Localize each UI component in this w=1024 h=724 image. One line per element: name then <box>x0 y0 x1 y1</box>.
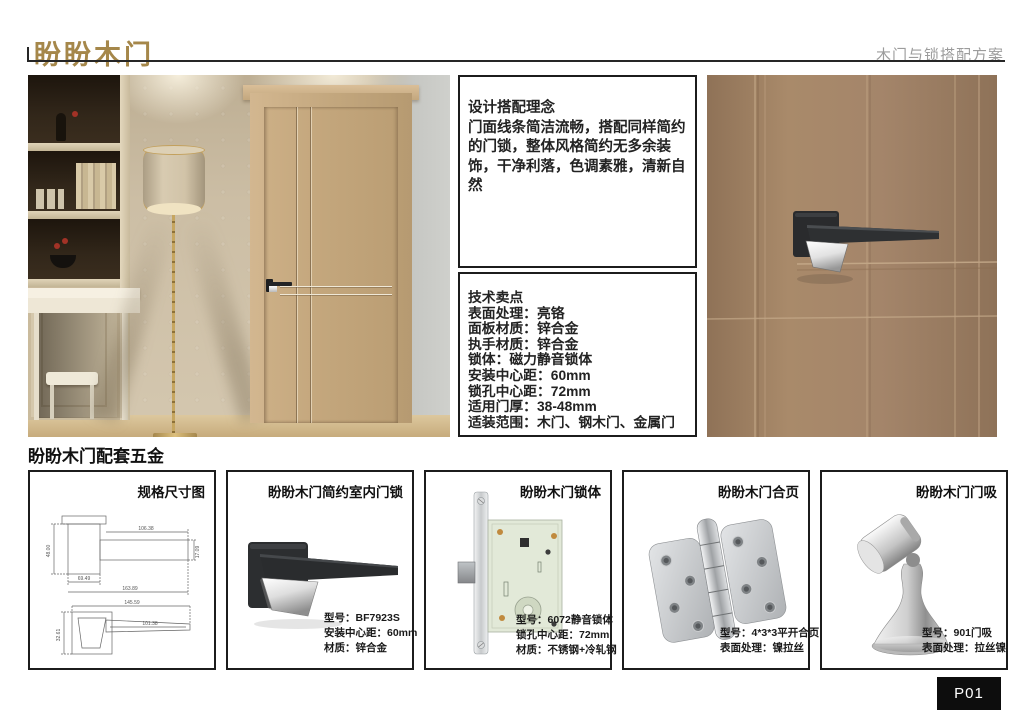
svg-text:163.89: 163.89 <box>122 586 138 592</box>
lamp-shade-top <box>143 145 205 155</box>
tech-line: 安装中心距：60mm <box>468 368 687 384</box>
shelf-board <box>28 143 120 151</box>
tech-points-title: 技术卖点 <box>468 290 687 306</box>
tech-line: 锁孔中心距：72mm <box>468 384 687 400</box>
hardware-box-lock-body: 盼盼木门锁体 <box>424 470 612 670</box>
svg-text:48.00: 48.00 <box>46 545 52 558</box>
shelf-board <box>28 279 120 287</box>
svg-text:106.38: 106.38 <box>138 526 154 532</box>
product-specs: 型号：BF7923S 安装中心距：60mm 材质：锌合金 <box>324 611 417 656</box>
product-specs: 型号：6072静音锁体 锁孔中心距：72mm 材质：不锈钢+冷轧钢 <box>516 613 617 658</box>
tech-line: 锁体：磁力静音锁体 <box>468 352 687 368</box>
spec-line: 安装中心距：60mm <box>324 626 417 641</box>
hardware-box-spec-drawing: 规格尺寸图 48.00 106.38 17.09 69.49 <box>28 470 216 670</box>
product-specs: 型号：4*3*3平开合页 表面处理：镍拉丝 <box>720 626 819 656</box>
page-number-badge: P01 <box>937 677 1001 710</box>
hardware-box-title: 盼盼木门简约室内门锁 <box>268 481 403 501</box>
hardware-box-title: 规格尺寸图 <box>138 481 206 501</box>
shelf-cavity <box>28 219 120 279</box>
spec-line: 型号：4*3*3平开合页 <box>720 626 819 641</box>
stool-leg <box>50 385 54 419</box>
svg-text:69.49: 69.49 <box>78 576 91 582</box>
tech-points-box: 技术卖点 表面处理：亮铬 面板材质：锌合金 执手材质：锌合金 锁体：磁力静音锁体… <box>458 272 697 437</box>
shelf-cavity <box>28 75 120 143</box>
design-concept-box: 设计搭配理念 门面线条简洁流畅，搭配同样简约的门锁，整体风格简约无多余装饰，干净… <box>458 75 697 268</box>
hardware-box-hinge: 盼盼木门合页 <box>622 470 810 670</box>
spec-line: 材质：锌合金 <box>324 641 417 656</box>
svg-text:17.09: 17.09 <box>195 546 201 559</box>
stool <box>46 372 98 385</box>
product-specs: 型号：901门吸 表面处理：拉丝镍 <box>922 626 1006 656</box>
desk-leg <box>34 313 39 420</box>
door-handle-chrome <box>269 286 277 292</box>
decor-books <box>76 163 116 209</box>
desk-top <box>28 288 140 298</box>
decor-red-flower <box>72 111 78 117</box>
floor-lamp <box>136 147 226 437</box>
section-title: 盼盼木门配套五金 <box>28 442 164 467</box>
spec-line: 型号：6072静音锁体 <box>516 613 617 628</box>
lamp-base <box>153 433 197 437</box>
door-groove-highlight <box>311 107 312 423</box>
shelf-board <box>28 211 120 219</box>
door-inlay-line <box>280 286 392 287</box>
svg-text:145.59: 145.59 <box>124 600 140 606</box>
lamp-shade <box>143 149 205 211</box>
spec-drawing-image: 48.00 106.38 17.09 69.49 163.89 145.59 1… <box>38 502 208 664</box>
svg-text:32.61: 32.61 <box>56 629 62 642</box>
decor-vase <box>56 113 66 141</box>
hardware-box-door-stopper: 盼盼木门门吸 型号：901门吸 <box>820 470 1008 670</box>
decor-red-flower <box>62 238 68 244</box>
door-inlay-line <box>280 294 392 295</box>
handle-closeup-photo <box>707 75 997 437</box>
spec-line: 表面处理：拉丝镍 <box>922 641 1006 656</box>
handle-closeup-image <box>707 75 997 437</box>
decor-red-flower <box>54 243 60 249</box>
catalog-page: 盼盼木门 木门与锁搭配方案 <box>0 0 1024 724</box>
spec-line: 材质：不锈钢+冷轧钢 <box>516 643 617 658</box>
room-photo <box>28 75 450 437</box>
design-concept-title: 设计搭配理念 <box>468 99 687 119</box>
door-slab <box>264 107 398 423</box>
lamp-glow <box>147 203 201 215</box>
tech-line: 面板材质：锌合金 <box>468 321 687 337</box>
svg-text:101.38: 101.38 <box>142 621 158 627</box>
spec-line: 表面处理：镍拉丝 <box>720 641 819 656</box>
door-groove-highlight <box>297 107 298 423</box>
header-rule <box>28 60 1005 62</box>
lamp-pole <box>172 213 175 433</box>
spec-line: 型号：BF7923S <box>324 611 417 626</box>
interior-door <box>250 85 412 423</box>
tech-line: 适用门厚：38-48mm <box>468 399 687 415</box>
spec-line: 型号：901门吸 <box>922 626 1006 641</box>
decor-pots <box>36 189 64 209</box>
design-concept-body: 门面线条简洁流畅，搭配同样简约的门锁，整体风格简约无多余装饰，干净利落，色调素雅… <box>468 119 687 197</box>
tech-line: 表面处理：亮铬 <box>468 306 687 322</box>
spec-line: 锁孔中心距：72mm <box>516 628 617 643</box>
hardware-box-door-lock: 盼盼木门简约室内门锁 型号：BF7923S 安装中心距：60mm 材质：锌合金 <box>226 470 414 670</box>
tech-line: 执手材质：锌合金 <box>468 337 687 353</box>
tech-line: 适装范围：木门、钢木门、金属门 <box>468 415 687 431</box>
brand-logo: 盼盼木门 <box>34 33 154 72</box>
